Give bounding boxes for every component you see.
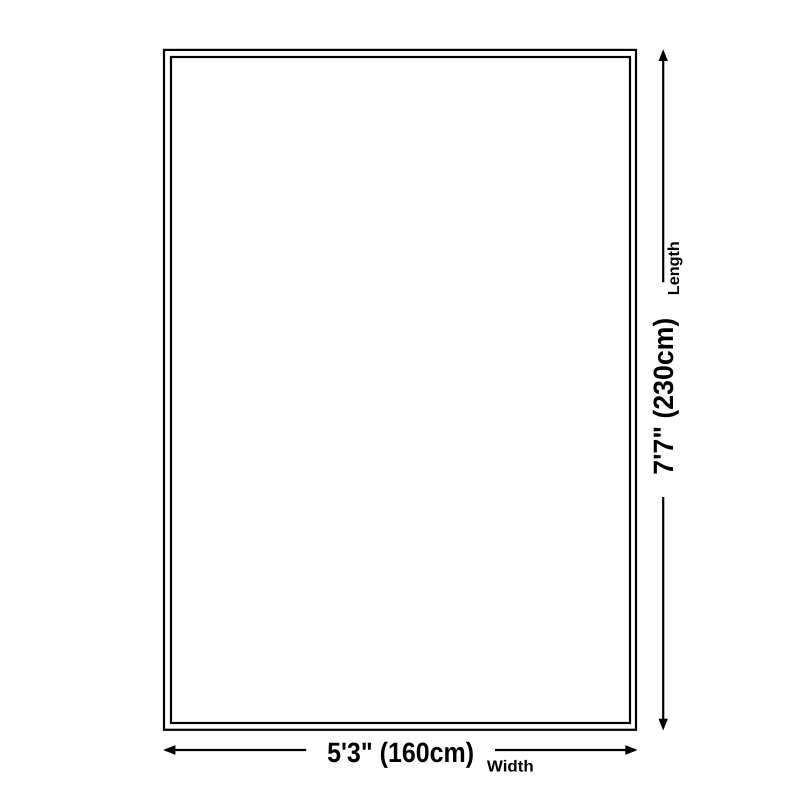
- svg-text:7'7" (230cm): 7'7" (230cm): [648, 318, 679, 475]
- svg-text:Width: Width: [487, 759, 534, 776]
- svg-text:5'3" (160cm): 5'3" (160cm): [327, 737, 474, 768]
- svg-text:Length: Length: [666, 241, 683, 295]
